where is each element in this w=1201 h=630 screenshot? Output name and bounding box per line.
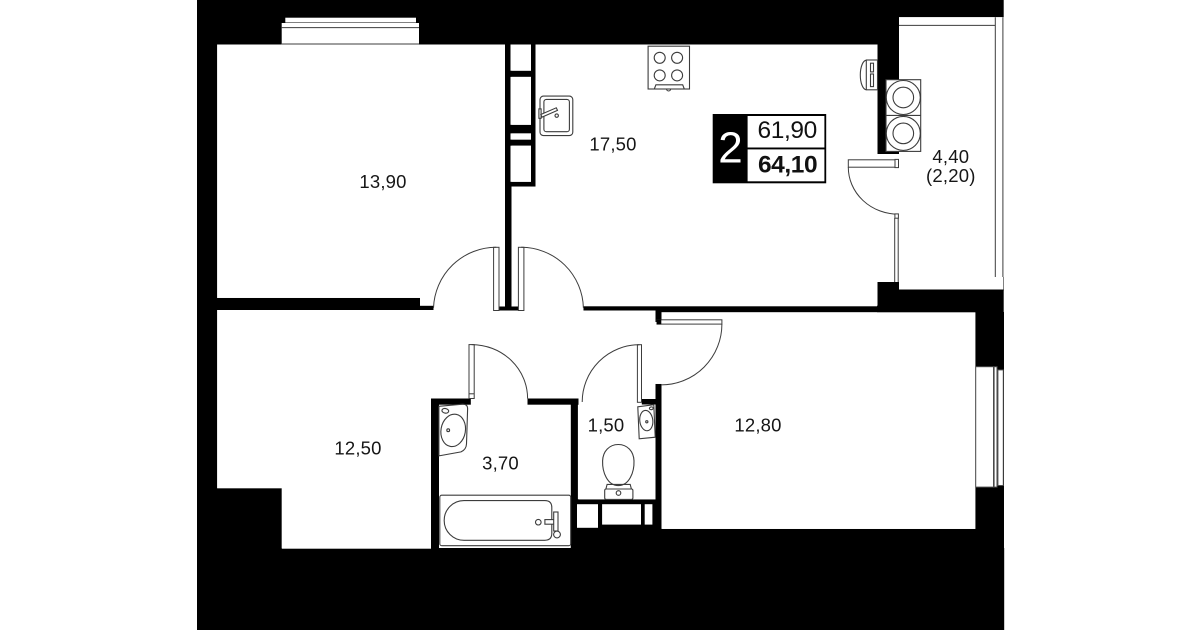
svg-text:64,10: 64,10 bbox=[758, 152, 817, 179]
svg-text:(2,20): (2,20) bbox=[926, 165, 976, 186]
svg-text:4,40: 4,40 bbox=[932, 146, 969, 167]
svg-text:1,50: 1,50 bbox=[588, 415, 625, 436]
svg-text:13,90: 13,90 bbox=[359, 171, 406, 192]
svg-text:61,90: 61,90 bbox=[758, 117, 817, 144]
svg-text:3,70: 3,70 bbox=[482, 453, 519, 474]
svg-text:12,50: 12,50 bbox=[334, 438, 381, 459]
svg-text:12,80: 12,80 bbox=[734, 415, 781, 436]
svg-text:2: 2 bbox=[718, 124, 742, 173]
svg-text:17,50: 17,50 bbox=[589, 134, 636, 155]
